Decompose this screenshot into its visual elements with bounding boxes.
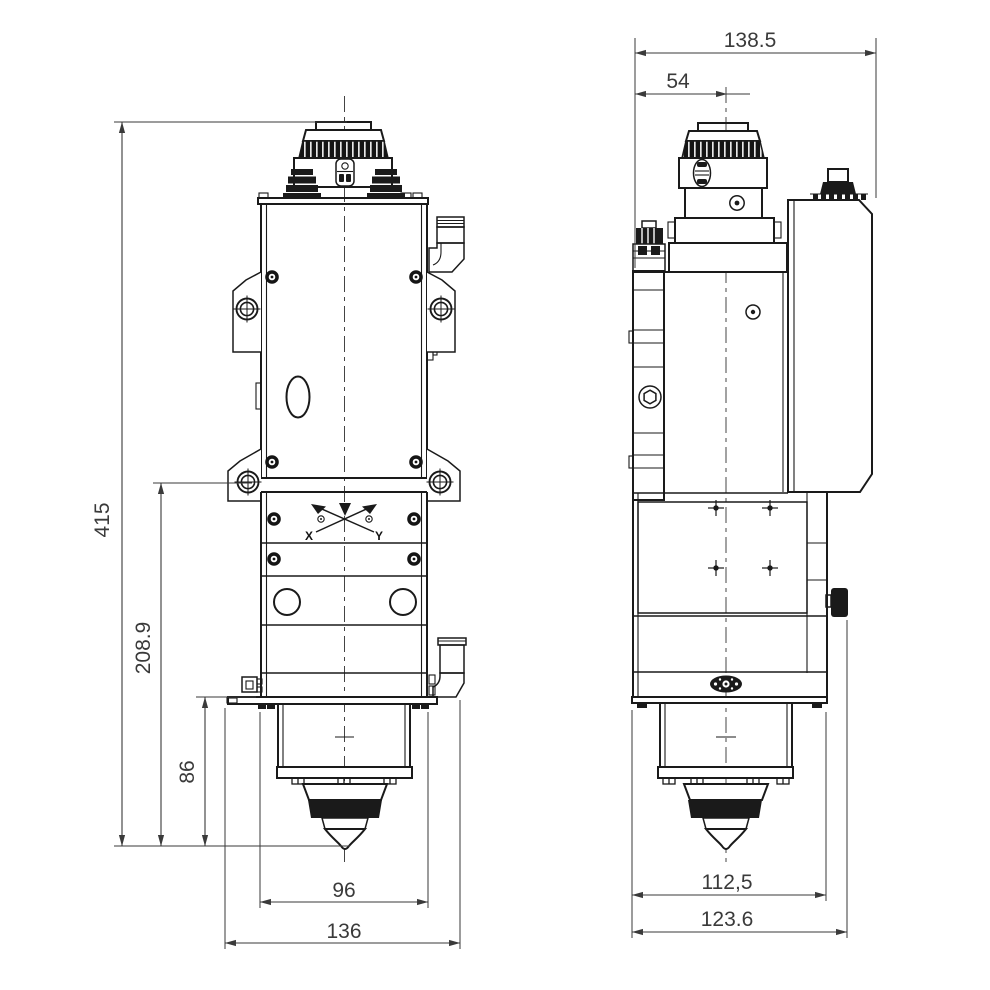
screw <box>265 270 279 284</box>
screw <box>407 552 421 566</box>
technical-drawing: X Y <box>0 0 990 990</box>
dim-label-96: 96 <box>332 879 355 902</box>
side-fitting-striped <box>636 228 663 244</box>
side-bottom-connector <box>710 676 742 693</box>
y-axis-label: Y <box>375 529 383 543</box>
screw <box>409 455 423 469</box>
dim-label-136: 136 <box>326 920 361 943</box>
screw <box>407 512 421 526</box>
dim-label-208-9: 208.9 <box>132 622 155 675</box>
front-lower-flange <box>277 767 412 778</box>
front-flange <box>228 697 437 704</box>
dim-label-415: 415 <box>91 502 114 537</box>
front-knurled-ring <box>299 141 388 158</box>
side-mount-plate <box>669 243 787 272</box>
side-lower-flange <box>658 767 793 778</box>
side-nozzle-ring <box>688 800 762 818</box>
side-bottom-plate <box>632 697 827 703</box>
background <box>0 0 990 990</box>
x-axis-label: X <box>305 529 313 543</box>
dim-label-54: 54 <box>666 70 690 93</box>
side-knurled-ring <box>682 141 764 158</box>
screw <box>265 455 279 469</box>
front-nozzle-ring <box>308 800 382 818</box>
drawing-canvas: X Y <box>0 0 990 990</box>
dim-label-86: 86 <box>176 760 199 783</box>
front-cap-latch <box>336 159 354 186</box>
dim-label-138-5: 138.5 <box>724 29 777 52</box>
side-panel-box <box>788 169 872 492</box>
dim-label-123-6: 123.6 <box>701 908 754 931</box>
screw <box>409 270 423 284</box>
screw <box>267 512 281 526</box>
dim-label-112-5: 112,5 <box>702 871 753 894</box>
screw <box>267 552 281 566</box>
